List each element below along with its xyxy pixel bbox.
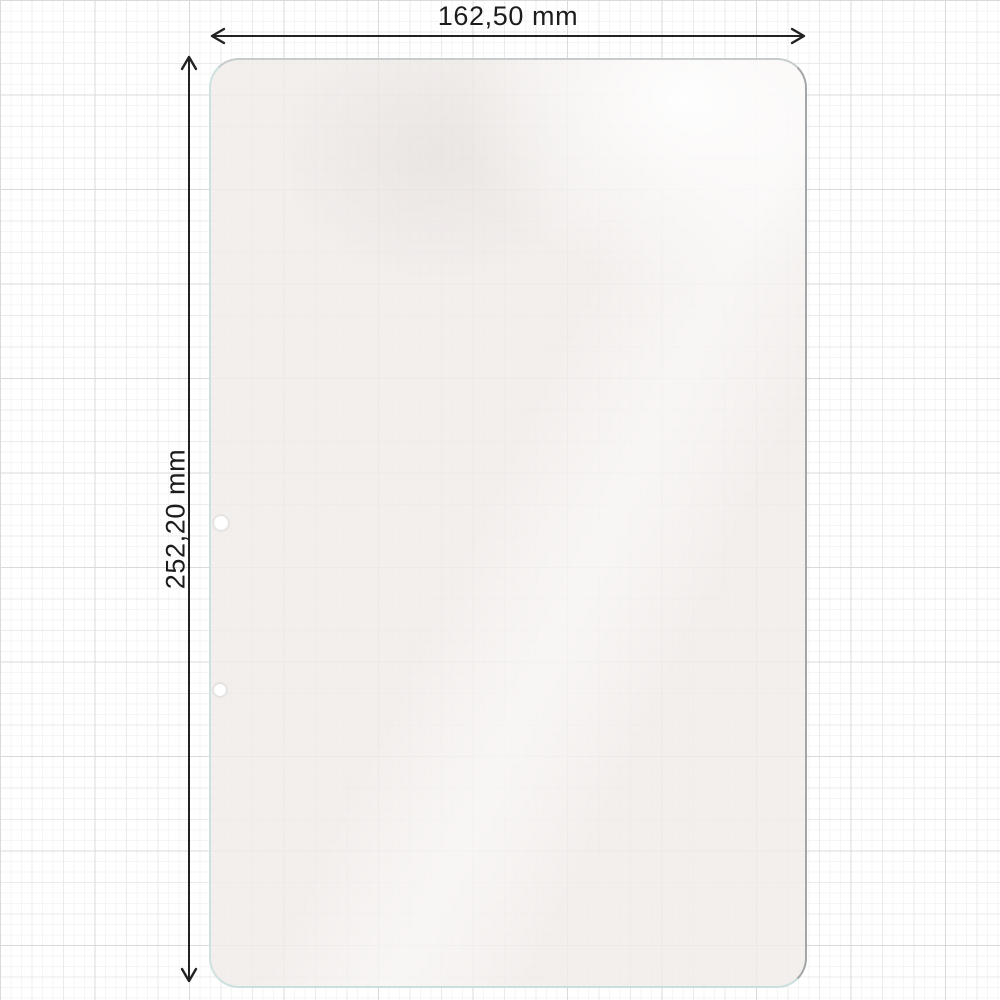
width-dimension-label: 162,50 mm [208, 1, 808, 32]
camera-hole-cutout [214, 684, 226, 696]
height-dimension-label: 252,20 mm [161, 449, 192, 589]
screen-protector-sheet [209, 58, 807, 988]
dimension-diagram: 162,50 mm 252,20 mm [0, 0, 1000, 1000]
camera-hole-cutout [214, 516, 228, 530]
glass-reflection-sheen [211, 60, 805, 986]
